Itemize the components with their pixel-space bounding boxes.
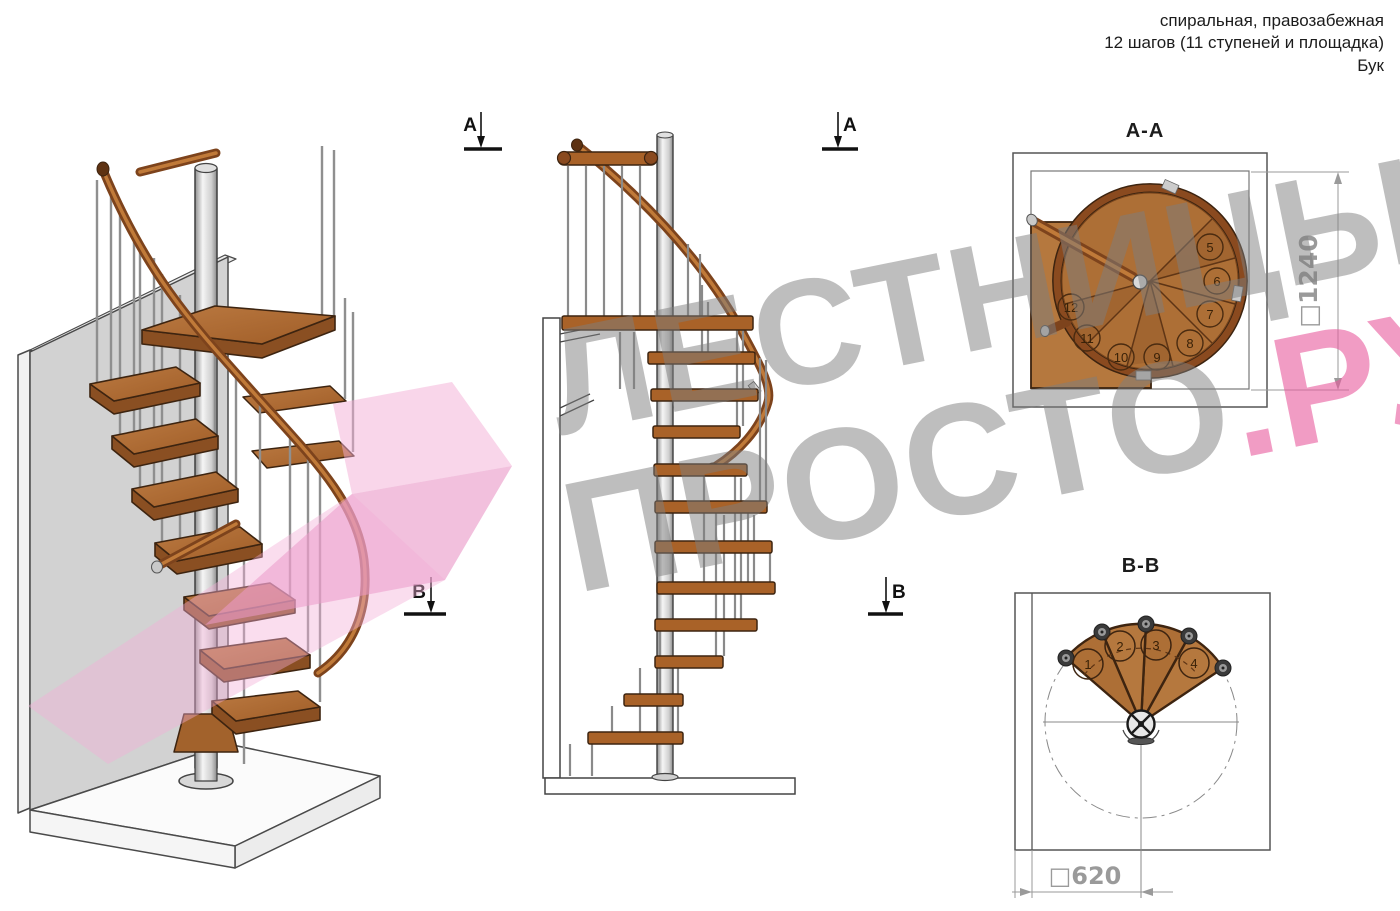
material-line: Бук bbox=[1104, 55, 1384, 77]
isometric-view bbox=[18, 146, 380, 868]
marker-b-left: B bbox=[404, 577, 446, 614]
stair-type-line: спиральная, правозабежная bbox=[1104, 10, 1384, 32]
section-aa-view: A-A bbox=[1013, 120, 1349, 407]
technical-drawing: A A B B bbox=[0, 0, 1400, 911]
elevation-view: A A B B bbox=[404, 112, 906, 794]
step-number: 4 bbox=[1190, 656, 1197, 671]
section-arrow-icon bbox=[834, 136, 842, 148]
marker-letter-a: A bbox=[463, 115, 477, 136]
top-rail bbox=[558, 152, 658, 166]
dimension-620: □620 bbox=[1012, 850, 1173, 898]
section-arrow-icon bbox=[477, 136, 485, 148]
dim-arrow-icon bbox=[1020, 888, 1032, 896]
dim-arrow-icon bbox=[1334, 378, 1342, 390]
marker-a-left: A bbox=[463, 112, 502, 149]
marker-b-right: B bbox=[868, 577, 906, 614]
section-arrow-icon bbox=[427, 601, 435, 613]
section-bb-label: B-B bbox=[1122, 555, 1161, 577]
marker-letter-b: B bbox=[892, 582, 906, 603]
marker-letter-b: B bbox=[412, 582, 426, 603]
step-number: 6 bbox=[1213, 274, 1220, 289]
step-number: 11 bbox=[1080, 331, 1094, 346]
wall-brackets bbox=[560, 326, 600, 416]
dim-arrow-icon bbox=[1334, 172, 1342, 184]
steps-count-line: 12 шагов (11 ступеней и площадка) bbox=[1104, 32, 1384, 54]
pole-ball bbox=[1133, 275, 1147, 289]
step-number: 2 bbox=[1116, 639, 1123, 654]
step-number: 5 bbox=[1206, 240, 1213, 255]
section-arrow-icon bbox=[882, 601, 890, 613]
section-aa-label: A-A bbox=[1126, 120, 1165, 142]
marker-a-right: A bbox=[822, 112, 858, 149]
dimension-620-text: □620 bbox=[1049, 862, 1122, 890]
marker-letter-a: A bbox=[843, 115, 857, 136]
step-number: 1 bbox=[1084, 657, 1091, 672]
step-number: 9 bbox=[1153, 350, 1160, 365]
section-bb-view: B-B bbox=[1012, 555, 1270, 898]
drawing-page: спиральная, правозабежная 12 шагов (11 с… bbox=[0, 0, 1400, 911]
dimension-1240-text: □1240 bbox=[1294, 234, 1323, 327]
step-number: 8 bbox=[1186, 336, 1193, 351]
step-number: 10 bbox=[1114, 350, 1128, 365]
step-number: 12 bbox=[1064, 300, 1078, 315]
step-number: 3 bbox=[1152, 638, 1159, 653]
dim-arrow-icon bbox=[1141, 888, 1153, 896]
step-number: 7 bbox=[1206, 307, 1213, 322]
wall-section bbox=[543, 318, 560, 778]
title-block: спиральная, правозабежная 12 шагов (11 с… bbox=[1104, 10, 1384, 77]
